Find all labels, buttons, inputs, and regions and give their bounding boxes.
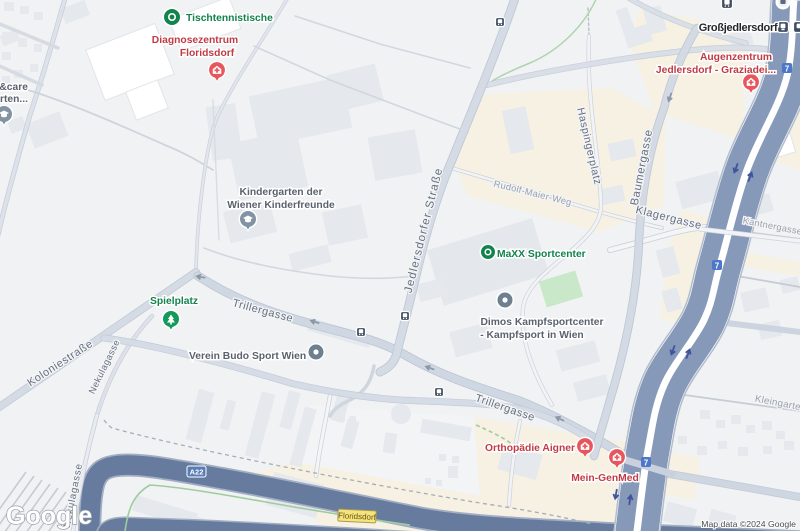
- svg-text:Koloniestraße: Koloniestraße: [25, 338, 95, 389]
- svg-text:- Kampfsport in Wien: - Kampfsport in Wien: [480, 330, 583, 341]
- svg-text:7: 7: [715, 261, 720, 270]
- svg-text:Orthopädie Aigner: Orthopädie Aigner: [485, 443, 575, 454]
- svg-text:Klagergasse: Klagergasse: [634, 204, 703, 232]
- svg-text:Dimos Kampfsportcenter: Dimos Kampfsportcenter: [480, 317, 603, 328]
- svg-text:Diagnosezentrum: Diagnosezentrum: [152, 35, 238, 46]
- svg-text:7: 7: [644, 458, 649, 467]
- svg-text:Verein Budo Sport Wien: Verein Budo Sport Wien: [189, 351, 306, 362]
- svg-text:Floridsdorf: Floridsdorf: [180, 48, 235, 59]
- svg-text:A22: A22: [190, 468, 204, 477]
- svg-text:Augenzentrum: Augenzentrum: [700, 52, 772, 63]
- svg-text:Wiener Kinderfreunde: Wiener Kinderfreunde: [227, 200, 335, 211]
- svg-text:Spielplatz: Spielplatz: [150, 296, 198, 307]
- svg-text:Großjedlersdorf: Großjedlersdorf: [699, 22, 778, 34]
- svg-text:arten...: arten...: [0, 94, 28, 105]
- svg-text:&care: &care: [0, 82, 28, 93]
- svg-text:MaXX Sportcenter: MaXX Sportcenter: [497, 249, 586, 260]
- svg-text:Kindergarten der: Kindergarten der: [240, 187, 323, 198]
- svg-text:Trillergasse: Trillergasse: [231, 297, 294, 325]
- svg-text:Google: Google: [6, 502, 92, 530]
- svg-text:Mein-GenMed: Mein-GenMed: [571, 473, 639, 484]
- svg-text:Tischtennistische: Tischtennistische: [186, 13, 273, 24]
- svg-text:7: 7: [785, 64, 790, 73]
- svg-text:Map data ©2024 Google: Map data ©2024 Google: [701, 519, 796, 529]
- svg-text:Jedlersdorf - Graziadei...: Jedlersdorf - Graziadei...: [656, 65, 776, 76]
- svg-text:Kleingartenverein: Kleingartenverein: [754, 393, 800, 419]
